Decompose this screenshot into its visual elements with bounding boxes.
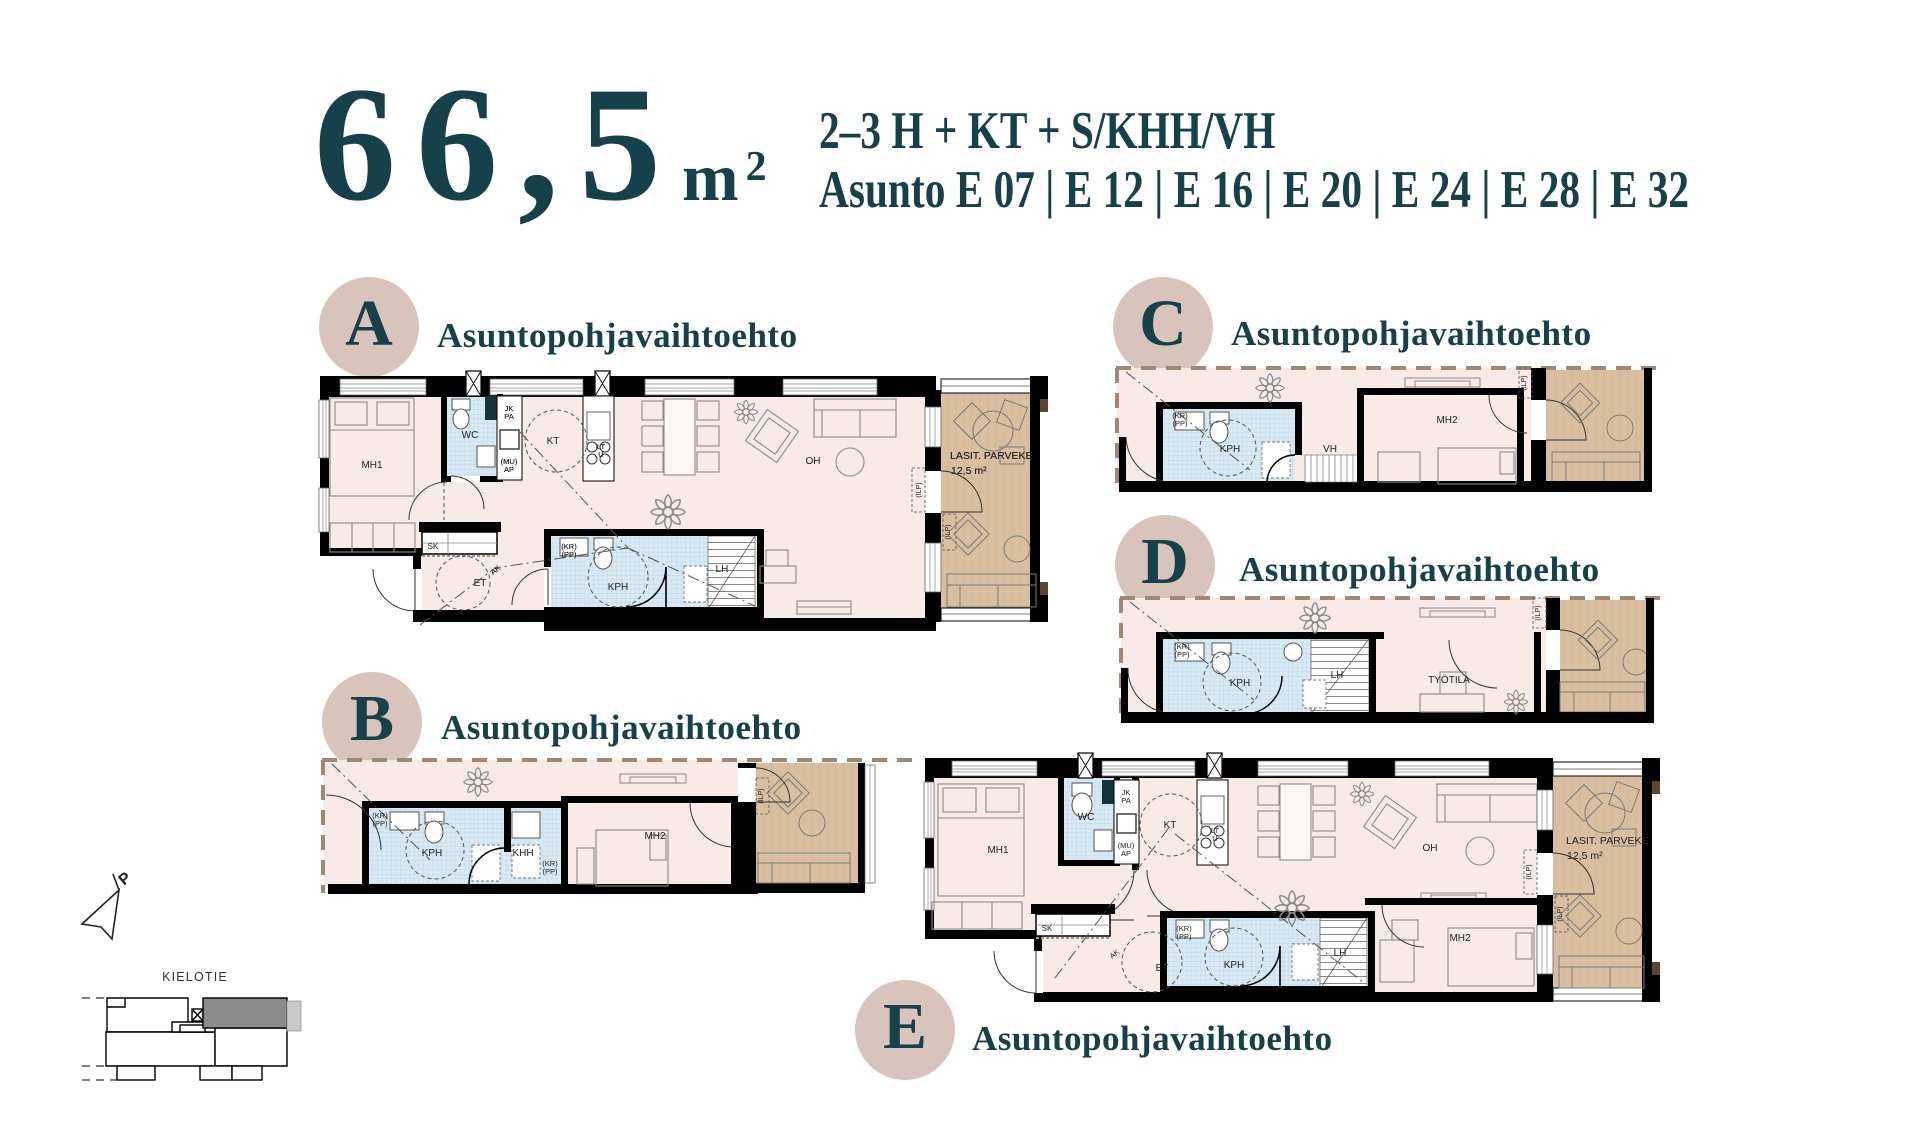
svg-text:(ILP): (ILP) bbox=[916, 482, 923, 497]
svg-text:12,5 m²: 12,5 m² bbox=[951, 465, 987, 477]
svg-text:P: P bbox=[116, 869, 135, 889]
svg-text:(PP): (PP) bbox=[373, 819, 389, 828]
svg-text:(PP): (PP) bbox=[562, 550, 578, 559]
svg-text:(PP): (PP) bbox=[1173, 419, 1189, 428]
svg-text:WC: WC bbox=[1078, 812, 1095, 823]
svg-text:ET: ET bbox=[474, 578, 487, 589]
svg-text:LASIT. PARVEKE: LASIT. PARVEKE bbox=[950, 450, 1032, 462]
svg-text:MH1: MH1 bbox=[987, 845, 1009, 856]
svg-text:KHH: KHH bbox=[512, 848, 533, 859]
svg-text:OH: OH bbox=[1423, 843, 1438, 854]
svg-text:MH2: MH2 bbox=[1436, 415, 1458, 426]
svg-text:12,5 m²: 12,5 m² bbox=[1567, 850, 1603, 862]
svg-text:OH: OH bbox=[806, 456, 821, 467]
svg-text:(ILP): (ILP) bbox=[1526, 864, 1533, 879]
svg-text:(PP): (PP) bbox=[543, 867, 559, 876]
svg-text:(PP): (PP) bbox=[1175, 650, 1191, 659]
svg-text:WC: WC bbox=[462, 430, 479, 441]
svg-text:KT: KT bbox=[1164, 820, 1177, 831]
svg-text:MH1: MH1 bbox=[361, 460, 383, 471]
svg-text:MH2: MH2 bbox=[644, 831, 666, 842]
svg-text:LH: LH bbox=[1331, 670, 1344, 681]
svg-text:KT: KT bbox=[547, 436, 560, 447]
svg-text:SK: SK bbox=[1042, 924, 1053, 933]
svg-text:(ILP): (ILP) bbox=[1521, 375, 1528, 390]
svg-text:AP: AP bbox=[504, 465, 514, 474]
svg-text:KPH: KPH bbox=[1230, 678, 1251, 689]
svg-text:KPH: KPH bbox=[422, 848, 443, 859]
svg-text:MH2: MH2 bbox=[1449, 933, 1471, 944]
svg-text:KPH: KPH bbox=[1220, 444, 1241, 455]
svg-text:U: U bbox=[598, 450, 603, 459]
svg-text:VH: VH bbox=[1323, 444, 1337, 455]
svg-text:KPH: KPH bbox=[608, 582, 629, 593]
svg-text:LH: LH bbox=[1334, 948, 1347, 959]
svg-text:LASIT. PARVEKE: LASIT. PARVEKE bbox=[1566, 835, 1648, 847]
svg-text:(ILP): (ILP) bbox=[1535, 605, 1542, 620]
svg-text:U: U bbox=[1212, 834, 1217, 843]
svg-text:PA: PA bbox=[504, 412, 513, 421]
svg-text:AP: AP bbox=[1121, 849, 1131, 858]
svg-text:TYÖTILA: TYÖTILA bbox=[1428, 674, 1470, 686]
svg-text:PA: PA bbox=[1121, 796, 1130, 805]
svg-text:LH: LH bbox=[716, 564, 729, 575]
svg-text:(ILP): (ILP) bbox=[758, 788, 765, 803]
svg-text:(PP): (PP) bbox=[1177, 932, 1193, 941]
svg-text:ET: ET bbox=[1156, 963, 1169, 974]
svg-text:SK: SK bbox=[428, 542, 439, 551]
svg-text:KIELOTIE: KIELOTIE bbox=[162, 970, 228, 984]
svg-text:KPH: KPH bbox=[1224, 960, 1245, 971]
